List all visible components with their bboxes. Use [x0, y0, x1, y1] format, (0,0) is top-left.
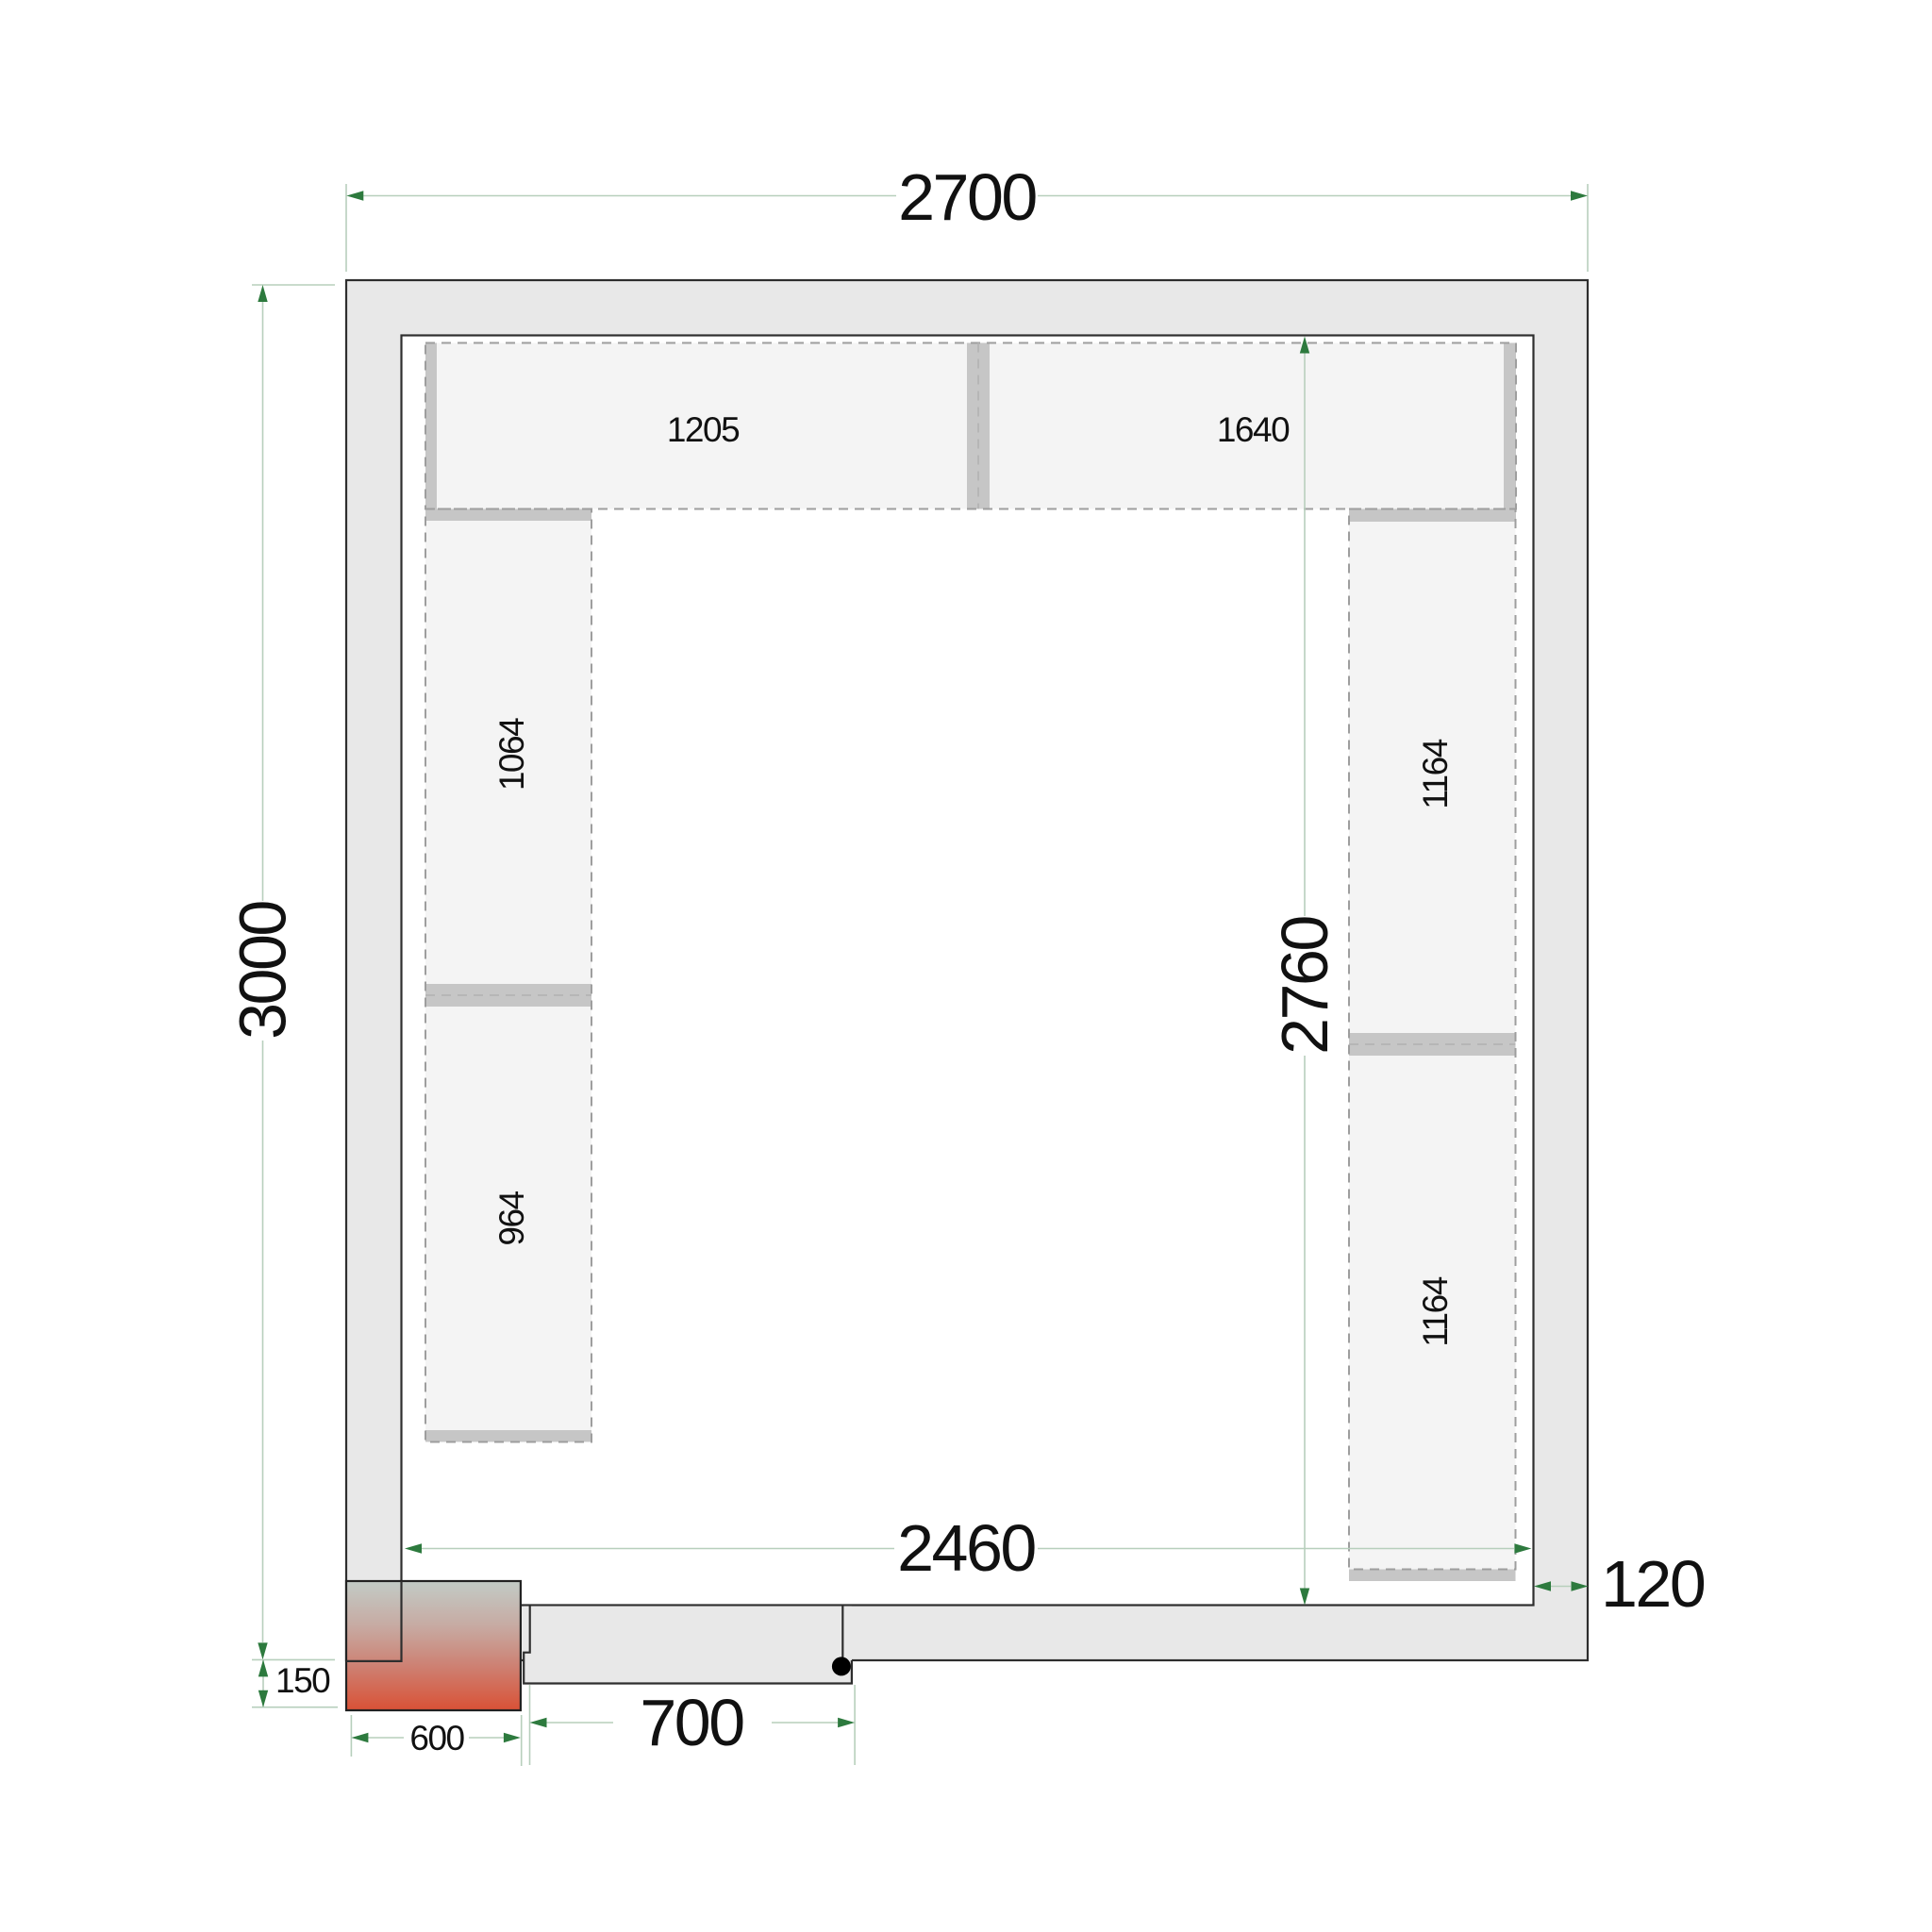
svg-text:700: 700 [640, 1686, 743, 1759]
svg-text:2700: 2700 [898, 160, 1036, 234]
svg-text:964: 964 [492, 1191, 531, 1245]
svg-text:150: 150 [275, 1661, 330, 1700]
svg-text:120: 120 [1601, 1547, 1705, 1621]
svg-text:1205: 1205 [667, 410, 740, 449]
svg-text:3000: 3000 [226, 902, 300, 1040]
svg-text:600: 600 [409, 1719, 464, 1757]
svg-text:1064: 1064 [492, 718, 531, 791]
svg-text:1164: 1164 [1416, 1276, 1455, 1346]
svg-text:2460: 2460 [897, 1511, 1035, 1585]
svg-text:1640: 1640 [1217, 410, 1290, 449]
svg-text:2760: 2760 [1268, 917, 1341, 1055]
svg-text:1164: 1164 [1416, 739, 1455, 808]
